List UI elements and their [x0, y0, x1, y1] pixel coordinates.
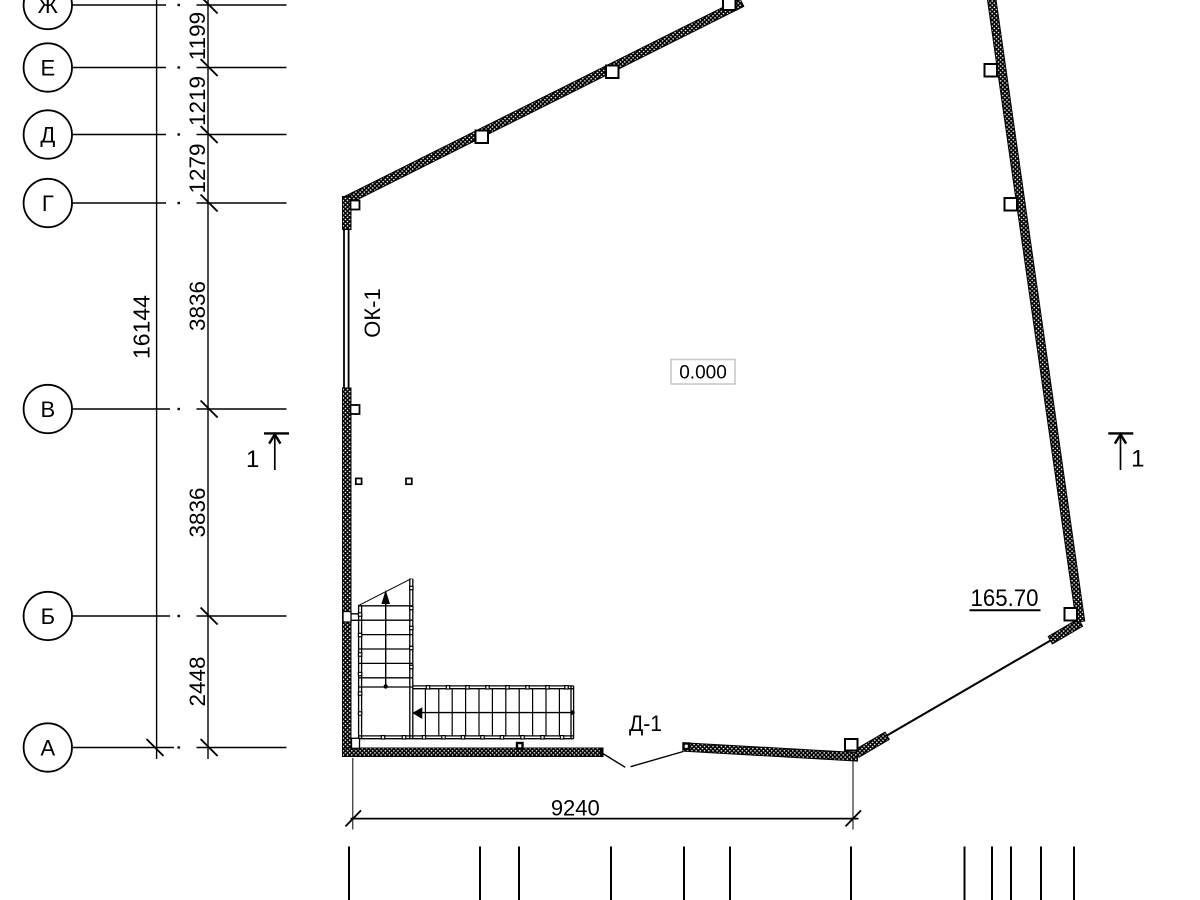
svg-text:Г: Г [42, 191, 54, 216]
svg-text:Ж: Ж [38, 0, 59, 18]
svg-text:1199: 1199 [185, 12, 210, 60]
svg-text:1: 1 [1131, 446, 1144, 473]
svg-text:9240: 9240 [551, 795, 600, 820]
svg-text:Б: Б [41, 604, 55, 629]
svg-text:3836: 3836 [185, 281, 210, 331]
svg-text:В: В [40, 397, 55, 422]
svg-text:16144: 16144 [129, 295, 155, 359]
svg-text:3836: 3836 [185, 487, 210, 537]
svg-text:ОК-1: ОК-1 [360, 288, 385, 338]
svg-text:Д-1: Д-1 [629, 711, 662, 736]
svg-text:1219: 1219 [185, 76, 210, 126]
svg-text:1279: 1279 [185, 143, 210, 193]
svg-text:А: А [40, 735, 55, 760]
svg-text:2448: 2448 [185, 656, 210, 706]
svg-text:165.70: 165.70 [971, 585, 1039, 612]
svg-text:Е: Е [40, 55, 55, 80]
svg-text:1: 1 [246, 446, 259, 473]
svg-text:0.000: 0.000 [679, 363, 727, 384]
svg-text:Д: Д [40, 122, 55, 147]
